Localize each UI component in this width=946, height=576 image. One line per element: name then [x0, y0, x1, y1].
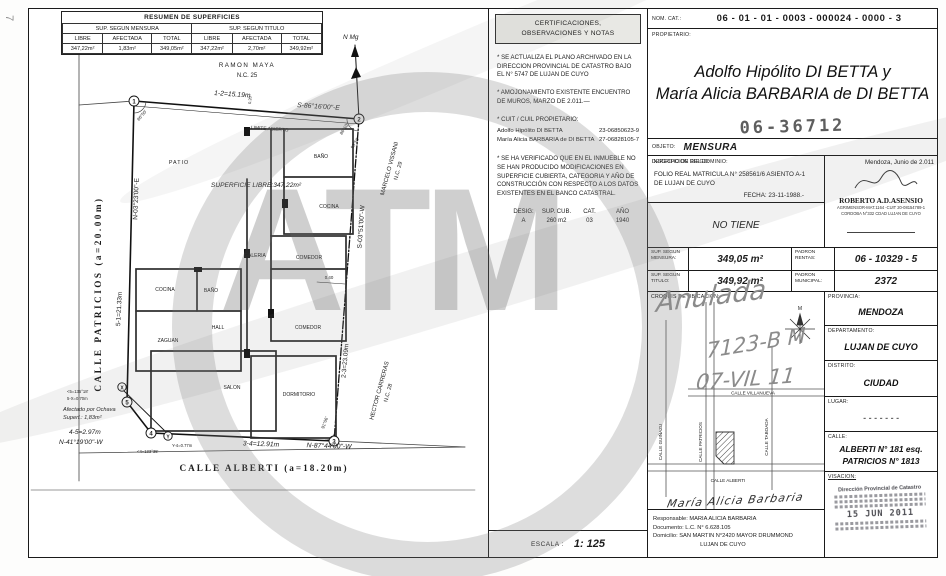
certifications-header: CERTIFICACIONES, OBSERVACIONES Y NOTAS: [495, 14, 641, 44]
surveyor-signature-scribble: [851, 168, 921, 194]
survey-plan-page: 7 RESUMEN DE SUPERFICIES SUP. SEGUN MENS…: [0, 0, 946, 576]
sup-mensura-label: SUP. SEGUN MENSURA:: [648, 248, 688, 270]
cuit-row: María Alicia BARBARIA de DI BETTA 27-068…: [497, 136, 639, 145]
desig-table: DESIG: A SUP. CUB. 260 m2 CAT. 03 AÑO 19…: [507, 208, 639, 226]
distrito-label: DISTRITO:: [828, 363, 855, 369]
superficie-libre: SUPERFICIE LIBRE:347,22m²: [211, 182, 302, 189]
group-titulo: SUP. SEGUN TITULO: [192, 24, 322, 34]
lugar-row: LUGAR: - - - - - - -: [825, 397, 937, 432]
desig-value: 260 m2: [546, 218, 566, 224]
bearing-top: S-86°16'00"-E: [297, 101, 341, 112]
north-label: N Mg: [343, 34, 359, 41]
angle-label: 93°50': [350, 136, 361, 149]
cuit-name: María Alicia BARBARIA de DI BETTA: [497, 136, 594, 145]
col-header: TOTAL: [152, 34, 192, 44]
cell-value: 1,83m²: [103, 44, 152, 54]
desig-header: CAT.: [583, 209, 596, 215]
objeto-value: MENSURA: [684, 142, 738, 153]
padron-rentas-label: PADRON RENTAS:: [792, 248, 834, 270]
subject-parcel-hatch: [716, 432, 734, 464]
desig-value: 03: [586, 218, 593, 224]
distrito-row: DISTRITO: CIUDAD: [825, 361, 937, 397]
departamento-row: DEPARTAMENTO: LUJAN DE CUYO: [825, 326, 937, 361]
plan-sheet: RESUMEN DE SUPERFICIES SUP. SEGUN MENSUR…: [28, 8, 938, 558]
catastro-stamp: Dirección Provincial de Catastro 15 JUN …: [828, 480, 933, 550]
calle-value-line1: ALBERTI N° 181 esq.: [825, 444, 937, 454]
cuit-row: Adolfo Hipólito DI BETTA 23-06850623-9: [497, 127, 639, 136]
dominio-cell: INSCRIPCION DEL DOMINIO: FOLIO REAL MATR…: [648, 156, 824, 248]
room-label: DORMITORIO: [283, 392, 316, 398]
room-label: COCINA: [319, 204, 339, 210]
compass-label: M: [798, 306, 802, 312]
owner-names: Adolfo Hipólito DI BETTA y María Alicia …: [648, 61, 937, 106]
street-label: CALLE TABOADA: [764, 417, 769, 455]
desig-header: SUP. CUB.: [542, 209, 571, 215]
room-label: COMEDOR: [296, 255, 323, 261]
owner-row: PROPIETARIO: Adolfo Hipólito DI BETTA y …: [648, 29, 937, 139]
room-label: HALL: [212, 325, 225, 331]
group-mensura: SUP. SEGUN MENSURA: [63, 24, 192, 34]
surveyor-detail2: CORDOBA N°332 CDAD LUJAN DE CUYO: [825, 211, 937, 216]
street-label: CALLE PATRICIOS: [698, 422, 703, 462]
responsible-document: Documento: L.C. N° 6.628.105: [653, 524, 793, 533]
cuit-number: 27-06828105-7: [599, 136, 639, 145]
note: * AMOJONAMIENTO EXISTENTE ENCUENTRO DE M…: [497, 89, 639, 107]
blank-signature-line: [847, 232, 915, 233]
col-header: AFECTADA: [232, 34, 281, 44]
ochava-angle5: <5=135°18': [67, 389, 89, 394]
bearing-right: S-03°51'00"-W: [356, 204, 367, 248]
provincia-label: PROVINCIA:: [828, 294, 860, 300]
neighbor-top-nc: N.C. 25: [237, 73, 258, 79]
padron-rentas-value: 06 - 10329 - 5: [834, 248, 937, 270]
title-block-column: NOM. CAT.: 06 - 01 - 01 - 0003 - 000024 …: [648, 9, 937, 557]
owner-name-line1: Adolfo Hipólito DI BETTA y: [648, 61, 937, 83]
plan-number-stamp: 06-36712: [648, 113, 937, 141]
angle-4: <4=133°35': [137, 449, 159, 454]
responsible-details: Responsable: MARIA ALICIA BARBARIA Docum…: [653, 515, 793, 549]
desig-value: 1940: [616, 218, 629, 224]
nomcat-label: NOM. CAT.:: [652, 16, 681, 22]
dim-040: 0.40: [325, 275, 334, 280]
responsible-city: LUJAN DE CUYO: [653, 541, 793, 550]
bearing-left: N-03°23'00"-E: [131, 177, 140, 220]
dim-bottom: 3-4=12.91m: [243, 440, 280, 448]
lugar-value: - - - - - - -: [825, 413, 937, 423]
cert-title-line1: CERTIFICACIONES,: [498, 19, 638, 29]
room-label: GALERIA: [244, 253, 266, 259]
neighbor-top: RAMON MAYA: [219, 62, 275, 69]
plan-drawing-area: RESUMEN DE SUPERFICIES SUP. SEGUN MENSUR…: [29, 9, 488, 557]
scale-label: ESCALA :: [531, 541, 564, 548]
site-plan-svg: N Mg: [29, 9, 488, 557]
cell-value: 347,22m²: [63, 44, 103, 54]
sup-mensura-value: 349,05 m²: [688, 248, 792, 270]
cert-title-line2: OBSERVACIONES Y NOTAS: [498, 29, 638, 39]
room-label: PATIO: [169, 160, 189, 166]
street-label: CALLE GUIÑAZU: [657, 424, 663, 461]
dominio-lines: FOLIO REAL MATRICULA N° 258561/6 ASIENTO…: [654, 170, 820, 189]
notes-block: * SE ACTUALIZA EL PLANO ARCHIVADO EN LA …: [489, 44, 647, 226]
cell-value: 349,05m²: [152, 44, 192, 54]
dominio-line2: DE LUJAN DE CUYO: [654, 179, 820, 188]
provincia-value: MENDOZA: [825, 307, 937, 317]
dominio-fecha: FECHA: 23-11-1988.-: [648, 192, 804, 199]
street-bottom: CALLE ALBERTI (a=18.20m): [179, 463, 348, 473]
calle-row: CALLE: ALBERTI N° 181 esq. PATRICIOS N° …: [825, 432, 937, 471]
surveyor-name: ROBERTO A.D.ASENSIO: [825, 196, 937, 205]
room-label: ZAGUAN: [158, 338, 179, 344]
departamento-value: LUJAN DE CUYO: [825, 342, 937, 352]
calle-value-line2: PATRICIOS N° 1813: [825, 456, 937, 466]
cuit-label: * CUIT / CUIL PROPIETARIO:: [497, 116, 639, 125]
dominio-line1: FOLIO REAL MATRICULA N° 258561/6 ASIENTO…: [654, 170, 820, 179]
dim-right: 2-3=23.09m: [341, 343, 351, 378]
col-header: AFECTADA: [103, 34, 152, 44]
ochava-bearing: N-41°19'00"-W: [59, 438, 103, 446]
len-y4: Y-4=0.77m: [172, 443, 193, 448]
scale-value: 1: 125: [574, 538, 605, 550]
cuit-number: 23-06850623-9: [599, 127, 639, 136]
objeto-row: OBJETO: MENSURA: [648, 139, 937, 156]
col-header: LIBRE: [192, 34, 232, 44]
surface-summary-table: RESUMEN DE SUPERFICIES SUP. SEGUN MENSUR…: [61, 11, 323, 55]
padron-municipal-label: PADRON MUNICIPAL:: [792, 271, 834, 292]
desig-value: A: [521, 218, 525, 224]
cell-value: 2,70m²: [232, 44, 281, 54]
dominio-block: INSCRIPCION DEL DOMINIO: FOLIO REAL MATR…: [648, 156, 937, 248]
riego-value: NO TIENE: [648, 220, 824, 231]
owner-name-line2: María Alicia BARBARIA de DI BETTA: [648, 83, 937, 105]
responsible-name: Responsable: MARIA ALICIA BARBARIA: [653, 515, 793, 524]
bearing-bottom: N-87°44'00"-W: [306, 441, 352, 451]
angle-label: 86°50': [136, 109, 148, 122]
visacion-cell: VISACION: Dirección Provincial de Catast…: [824, 471, 937, 557]
dim-left: 5-1=21.33m: [115, 292, 124, 327]
neighbor-right2-nc: N.C. 28: [383, 383, 394, 403]
provincia-row: PROVINCIA: MENDOZA: [825, 292, 937, 326]
note: * SE ACTUALIZA EL PLANO ARCHIVADO EN LA …: [497, 54, 639, 80]
distrito-value: CIUDAD: [825, 378, 937, 388]
neighbor-right1-nc: N.C. 29: [393, 161, 404, 181]
room-label: BAÑO: [314, 153, 328, 160]
lugar-label: LUGAR:: [828, 399, 849, 405]
ochava-len: 4-5=2.97m: [69, 429, 101, 436]
limite-abierto: LIMITE ABIERTO: [251, 125, 289, 134]
cell-value: 347,22m²: [192, 44, 232, 54]
cell-value: 349,92m²: [281, 44, 321, 54]
room-label: SALON: [224, 385, 241, 391]
summary-title: RESUMEN DE SUPERFICIES: [62, 12, 322, 23]
surveyor-signature-cell: Mendoza, Junio de 2.011 ROBERTO A.D.ASEN…: [824, 156, 937, 248]
visacion-label: VISACION:: [828, 474, 856, 480]
signature-date: Mendoza, Junio de 2.011: [865, 159, 934, 166]
scale-row: ESCALA : 1: 125: [489, 530, 647, 557]
ochava-note1: Afectado por Ochava: [62, 407, 116, 413]
ochava-len5x: 5-X=0.70m: [67, 396, 88, 401]
departamento-label: DEPARTAMENTO:: [828, 328, 874, 334]
angle-label: 91°06': [320, 416, 329, 429]
padron-municipal-value: 2372: [834, 271, 937, 292]
certifications-column: CERTIFICACIONES, OBSERVACIONES Y NOTAS *…: [488, 9, 648, 557]
owner-label: PROPIETARIO:: [652, 32, 691, 38]
room-label: COCINA: [155, 287, 175, 293]
nomcat-value: 06 - 01 - 01 - 0003 - 000024 - 0000 - 3: [681, 13, 937, 24]
tick-dim: 0.20: [247, 95, 253, 104]
responsible-party-cell: María Alicia Barbaria Responsable: MARIA…: [648, 509, 824, 557]
corner-mark: 7: [3, 15, 15, 21]
street-left: CALLE PATRICIOS (a=20.00m): [93, 196, 103, 391]
responsible-address: Domicilio: SAN MARTIN N°2420 MAYOR DRUMM…: [653, 532, 793, 541]
divider: [648, 202, 824, 203]
desig-header: DESIG:: [513, 209, 533, 215]
col-header: TOTAL: [281, 34, 321, 44]
nomcat-row: NOM. CAT.: 06 - 01 - 01 - 0003 - 000024 …: [648, 9, 937, 29]
riego-label: DERECHO DE RIEGO:: [652, 159, 710, 165]
note: * SE HA VERIFICADO QUE EN EL INMUEBLE NO…: [497, 155, 639, 199]
room-label: BAÑO: [204, 287, 218, 294]
surveyor-detail1: AGRIMENSOR-MAT.1164 -CUIT 20-08154789-1: [825, 205, 937, 210]
ochava-note2: Superf.: 1,83m²: [63, 415, 103, 421]
dim-top: 1-2=15.19m: [214, 90, 251, 100]
cuit-name: Adolfo Hipólito DI BETTA: [497, 127, 563, 136]
street-label: CALLE ALBERTI: [711, 478, 746, 483]
col-header: LIBRE: [63, 34, 103, 44]
room-label: COMEDOR: [295, 325, 322, 331]
calle-label: CALLE:: [828, 434, 847, 440]
objeto-label: OBJETO:: [652, 144, 676, 150]
desig-header: AÑO: [616, 209, 629, 215]
